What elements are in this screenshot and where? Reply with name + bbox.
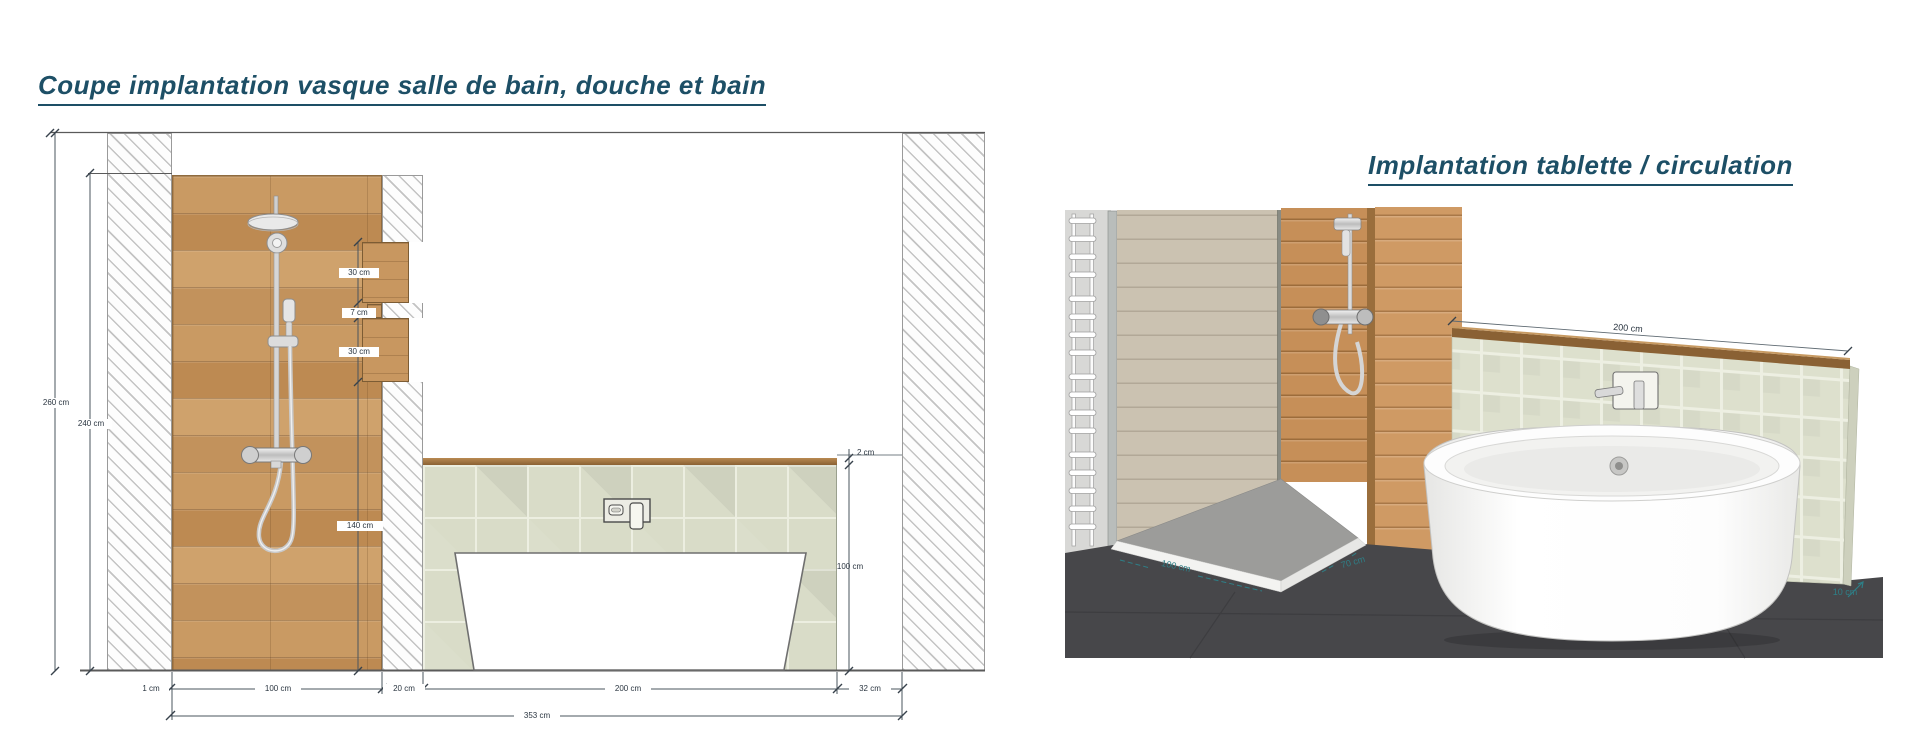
left-wall-section [107, 133, 172, 671]
tub-drain [1610, 457, 1628, 475]
shower-column-3d [1313, 214, 1373, 393]
left-drawing-title: Coupe implantation vasque salle de bain,… [38, 70, 766, 106]
glass-panel-frame [1108, 211, 1117, 563]
dim-shelf-thickness: 2 cm [856, 448, 888, 458]
dim-tray-width: 100 cm [1150, 556, 1203, 577]
shower-tray [1111, 479, 1366, 592]
floor-tile-joints [1065, 585, 1883, 658]
niche-lower-void [408, 318, 424, 382]
dim-panel-height: 240 cm [70, 419, 112, 429]
glass-panel [1117, 210, 1278, 562]
dim-partition-width: 20 cm [383, 684, 425, 694]
dim-shower-width: 100 cm [255, 684, 301, 694]
page: Coupe implantation vasque salle de bain,… [0, 0, 1920, 751]
niche-upper-void [408, 242, 424, 303]
towel-radiator [1069, 214, 1096, 546]
pony-wall-tiles [423, 465, 837, 671]
bathtub-3d [1424, 425, 1800, 650]
dimension-lines-3d [1120, 317, 1863, 597]
tablette-wall [1452, 326, 1859, 586]
right-3d-view [1065, 207, 1883, 658]
right-drawing-title: Implantation tablette / circulation [1368, 150, 1793, 186]
dim-bath-zone-width: 200 cm [605, 684, 651, 694]
dim-total-width: 353 cm [514, 711, 560, 721]
floor-3d [1065, 544, 1883, 658]
shower-back-wall-wood [1117, 210, 1278, 562]
dim-shelf-offset: 10 cm [1824, 587, 1866, 597]
bath-faucet-3d [1595, 372, 1658, 409]
dim-niche-lower: 30 cm [339, 347, 379, 357]
glass-panel-edge [1277, 210, 1281, 564]
dim-valve-height: 140 cm [337, 521, 383, 531]
dim-niche-gap: 7 cm [342, 308, 376, 318]
dim-gap-right: 32 cm [849, 684, 891, 694]
dim-tray-depth: 70 cm [1330, 551, 1375, 573]
dim-niche-upper: 30 cm [339, 268, 379, 278]
wood-pillar-side [1367, 208, 1375, 560]
dim-gap-left: 1 cm [133, 684, 169, 694]
shower-wood-panel [172, 175, 382, 671]
dim-shelf-length: 200 cm [1600, 321, 1657, 335]
dim-pony-wall-height: 100 cm [829, 562, 871, 572]
wood-pillar-front [1375, 207, 1462, 557]
right-wall-section [902, 133, 985, 671]
shower-wood-wall-3d [1281, 208, 1367, 482]
dim-room-height: 260 cm [35, 398, 77, 408]
side-wall [1065, 210, 1111, 560]
pony-wall-wood-cap [423, 458, 837, 465]
